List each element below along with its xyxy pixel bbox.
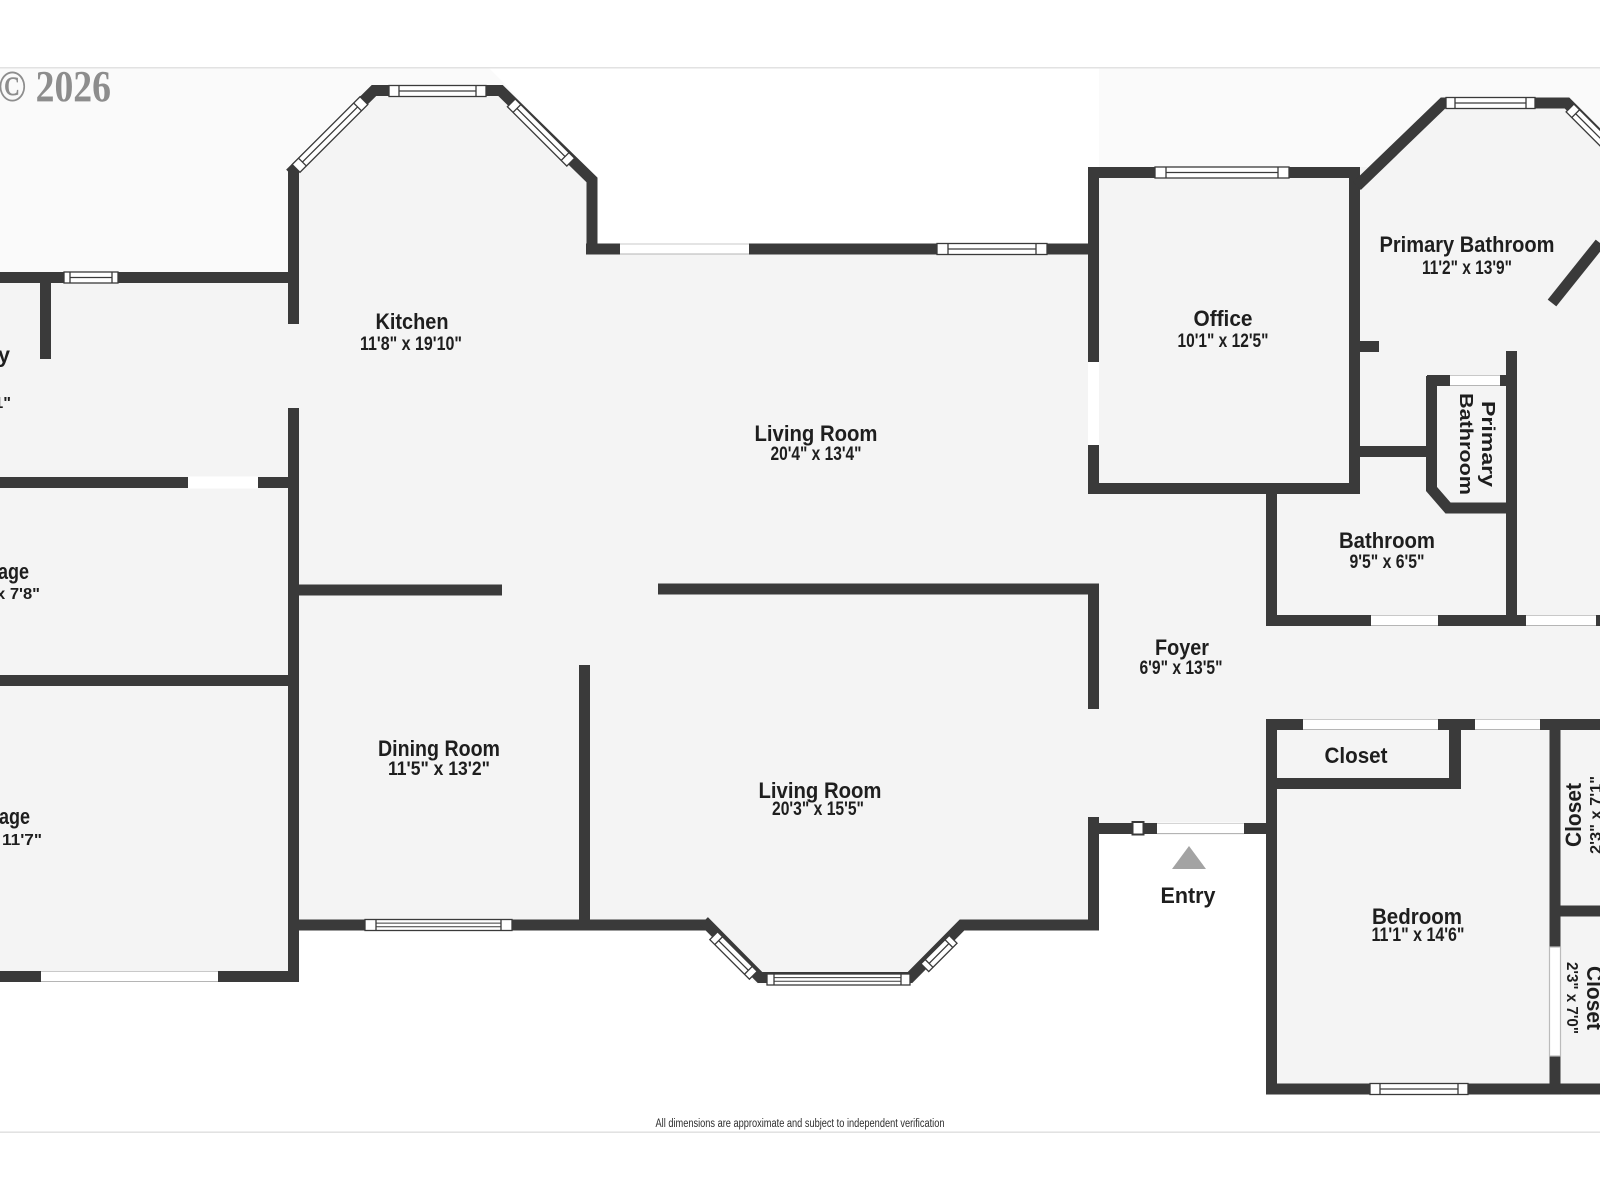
svg-text:Entry: Entry [1161,883,1217,908]
svg-text:Bathroom: Bathroom [1456,393,1476,495]
svg-text:Dining Room: Dining Room [378,736,500,761]
svg-text:6'9" x 13'5": 6'9" x 13'5" [1140,658,1223,679]
svg-text:Foyer: Foyer [1155,635,1209,660]
svg-text:11'5" x 13'2": 11'5" x 13'2" [388,759,490,780]
svg-text:Living Room: Living Room [755,421,878,446]
svg-text:20'3" x 15'5": 20'3" x 15'5" [772,799,864,820]
svg-text:Kitchen: Kitchen [376,309,449,334]
svg-text:9'5" x 6'5": 9'5" x 6'5" [1350,552,1425,573]
svg-text:11'2" x 13'9": 11'2" x 13'9" [1422,258,1512,279]
svg-text:Closet: Closet [1325,743,1389,768]
svg-text:20'4" x 11'7": 20'4" x 11'7" [0,832,42,849]
svg-text:9'1" x 5'1": 9'1" x 5'1" [0,395,11,412]
svg-text:15'4" x 7'8": 15'4" x 7'8" [0,586,40,603]
svg-text:© 2026: © 2026 [0,62,111,111]
svg-text:Office: Office [1194,306,1253,331]
svg-text:Bathroom: Bathroom [1339,528,1435,553]
svg-text:Garage: Garage [0,559,29,584]
svg-text:11'1" x 14'6": 11'1" x 14'6" [1372,925,1465,946]
svg-text:10'1" x 12'5": 10'1" x 12'5" [1178,331,1269,352]
svg-text:2'3" x 7'0": 2'3" x 7'0" [1563,962,1580,1034]
svg-text:Primary: Primary [1478,401,1498,487]
svg-text:Closet: Closet [1582,966,1600,1031]
svg-text:All dimensions are approximate: All dimensions are approximate and subje… [656,1118,945,1130]
svg-text:2'3" x 7'1": 2'3" x 7'1" [1588,776,1600,854]
svg-text:Closet: Closet [1561,782,1586,847]
svg-text:Entry: Entry [0,343,11,368]
svg-text:Primary Bathroom: Primary Bathroom [1380,232,1555,257]
svg-text:Garage: Garage [0,804,30,829]
svg-text:20'4" x 13'4": 20'4" x 13'4" [771,444,862,465]
svg-text:11'8" x 19'10": 11'8" x 19'10" [360,334,462,355]
